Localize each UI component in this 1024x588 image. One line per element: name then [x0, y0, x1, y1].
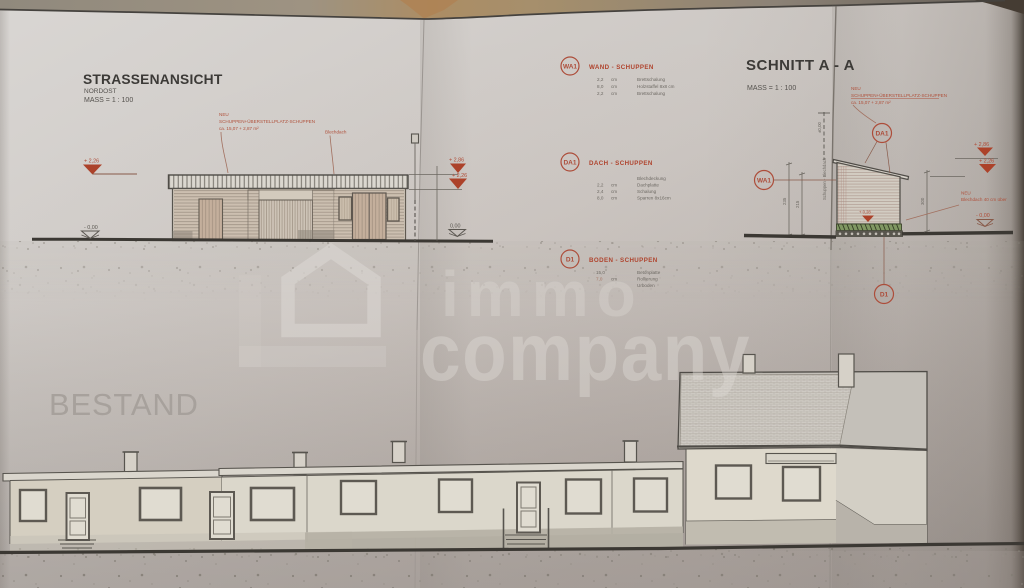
- svg-text:2,4: 2,4: [597, 189, 604, 194]
- svg-text:+ 2,26: + 2,26: [452, 173, 467, 179]
- svg-text:NORDOST: NORDOST: [84, 88, 117, 95]
- svg-text:STRASSENANSICHT: STRASSENANSICHT: [83, 72, 223, 87]
- svg-text:2,2: 2,2: [597, 91, 604, 96]
- svg-text:cm: cm: [611, 77, 617, 82]
- svg-text:cm: cm: [611, 183, 617, 188]
- svg-text:MASS = 1 : 100: MASS = 1 : 100: [84, 97, 133, 104]
- svg-text:Brettschalung: Brettschalung: [637, 77, 666, 82]
- svg-text:Sparren 8x16cm: Sparren 8x16cm: [637, 196, 671, 201]
- svg-text:ca. 15,07 + 2,87 m²: ca. 15,07 + 2,87 m²: [219, 126, 259, 131]
- svg-text:8,0: 8,0: [597, 84, 604, 89]
- svg-text:+ 2,26: + 2,26: [979, 159, 994, 165]
- svg-text:NEU: NEU: [851, 86, 861, 91]
- svg-text:215: 215: [795, 200, 800, 208]
- svg-text:SCHNITT A - A: SCHNITT A - A: [746, 57, 855, 74]
- svg-text:company: company: [420, 307, 751, 398]
- svg-text:±0,00: ±0,00: [817, 121, 822, 133]
- svg-text:+ 2,26: + 2,26: [84, 159, 99, 165]
- svg-text:2,2: 2,2: [597, 77, 604, 82]
- svg-text:235: 235: [782, 197, 787, 205]
- svg-text:Schuppen - Blechdach: Schuppen - Blechdach: [822, 157, 827, 200]
- svg-text:DA1: DA1: [563, 160, 576, 167]
- svg-text:+ 0,28: + 0,28: [859, 210, 871, 215]
- svg-text:- 0,00: - 0,00: [976, 213, 990, 219]
- svg-text:NEU: NEU: [219, 112, 229, 117]
- svg-text:WAND - SCHUPPEN: WAND - SCHUPPEN: [589, 64, 654, 71]
- svg-text:Blechdeckung: Blechdeckung: [637, 176, 666, 181]
- svg-text:ca. 15,07 + 2,87 m²: ca. 15,07 + 2,87 m²: [851, 100, 891, 105]
- svg-text:Blechdach: Blechdach: [325, 130, 347, 135]
- svg-text:+ 2,86: + 2,86: [449, 158, 464, 164]
- svg-text:NEU: NEU: [961, 191, 971, 196]
- svg-text:WA1: WA1: [757, 178, 771, 185]
- svg-text:cm: cm: [611, 196, 617, 201]
- svg-text:Blechdach 40 cm über: Blechdach 40 cm über: [961, 197, 1007, 202]
- svg-text:8,0: 8,0: [597, 196, 604, 201]
- svg-text:cm: cm: [611, 91, 617, 96]
- svg-text:0,00: 0,00: [450, 224, 461, 230]
- svg-text:- 0,00: - 0,00: [84, 225, 98, 231]
- svg-text:MASS = 1 : 100: MASS = 1 : 100: [747, 85, 796, 92]
- svg-text:DA1: DA1: [875, 131, 888, 138]
- svg-text:300: 300: [920, 197, 925, 205]
- svg-text:Dachplatte: Dachplatte: [637, 183, 659, 188]
- svg-text:+ 2,86: + 2,86: [974, 142, 989, 148]
- svg-text:cm: cm: [611, 84, 617, 89]
- svg-text:SCHUPPEN+ÜBERSTELLPLATZ-SCHUPP: SCHUPPEN+ÜBERSTELLPLATZ-SCHUPPEN: [851, 92, 947, 98]
- svg-text:WA1: WA1: [563, 64, 577, 71]
- svg-text:Brettschalung: Brettschalung: [637, 91, 666, 96]
- svg-text:SCHUPPEN+ÜBERSTELLPLATZ-SCHUPP: SCHUPPEN+ÜBERSTELLPLATZ-SCHUPPEN: [219, 118, 315, 124]
- svg-text:cm: cm: [611, 189, 617, 194]
- svg-text:DACH - SCHUPPEN: DACH - SCHUPPEN: [589, 160, 653, 167]
- svg-text:Schalung: Schalung: [637, 189, 657, 194]
- svg-text:BESTAND: BESTAND: [49, 387, 199, 422]
- svg-text:D1: D1: [880, 292, 889, 299]
- svg-text:Holzstaffel 8x8 cm: Holzstaffel 8x8 cm: [637, 84, 675, 89]
- svg-text:2,2: 2,2: [597, 183, 604, 188]
